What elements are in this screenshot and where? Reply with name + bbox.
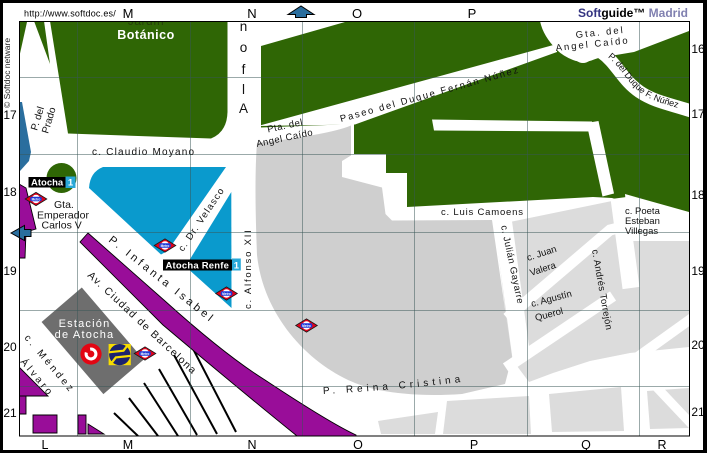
svg-text:http://www.softdoc.es/: http://www.softdoc.es/ <box>24 9 116 19</box>
svg-text:19: 19 <box>691 264 705 278</box>
svg-text:P: P <box>470 438 478 452</box>
svg-text:l: l <box>242 82 245 97</box>
svg-text:Atocha Renfe: Atocha Renfe <box>166 261 230 272</box>
svg-text:Villegas: Villegas <box>625 226 658 237</box>
svg-text:c. Claudio Moyano: c. Claudio Moyano <box>92 147 195 158</box>
svg-text:c. Luis Camoens: c. Luis Camoens <box>441 207 524 218</box>
svg-text:21: 21 <box>3 406 17 420</box>
svg-text:17: 17 <box>691 107 705 121</box>
svg-text:M: M <box>123 438 133 452</box>
svg-text:O: O <box>353 438 363 452</box>
svg-text:19: 19 <box>3 264 17 278</box>
svg-text:17: 17 <box>3 108 17 122</box>
svg-text:Q: Q <box>581 438 591 452</box>
svg-text:N: N <box>247 438 256 452</box>
svg-text:Atocha: Atocha <box>31 178 64 189</box>
svg-text:18: 18 <box>691 188 705 202</box>
svg-text:© Softdoc netware: © Softdoc netware <box>2 38 12 108</box>
svg-text:M: M <box>123 6 134 21</box>
svg-text:N: N <box>247 6 256 21</box>
svg-text:L: L <box>42 438 49 452</box>
svg-text:o: o <box>240 40 248 55</box>
svg-text:1: 1 <box>234 260 240 271</box>
svg-text:de Atocha: de Atocha <box>55 329 115 341</box>
svg-text:A: A <box>239 101 248 116</box>
svg-text:c. Alfonso XII: c. Alfonso XII <box>243 228 254 309</box>
svg-text:Carlos V: Carlos V <box>42 220 82 232</box>
svg-text:R: R <box>657 438 666 452</box>
svg-text:18: 18 <box>3 185 17 199</box>
svg-text:16: 16 <box>691 42 705 56</box>
svg-text:P: P <box>468 6 477 21</box>
svg-text:20: 20 <box>3 340 17 354</box>
svg-text:1: 1 <box>68 178 74 189</box>
svg-text:Botánico: Botánico <box>117 28 174 42</box>
svg-text:O: O <box>352 6 362 21</box>
svg-text:21: 21 <box>691 405 705 419</box>
svg-text:Softguide™ Madrid: Softguide™ Madrid <box>578 6 688 20</box>
svg-text:f: f <box>242 62 246 77</box>
svg-text:20: 20 <box>691 338 705 352</box>
